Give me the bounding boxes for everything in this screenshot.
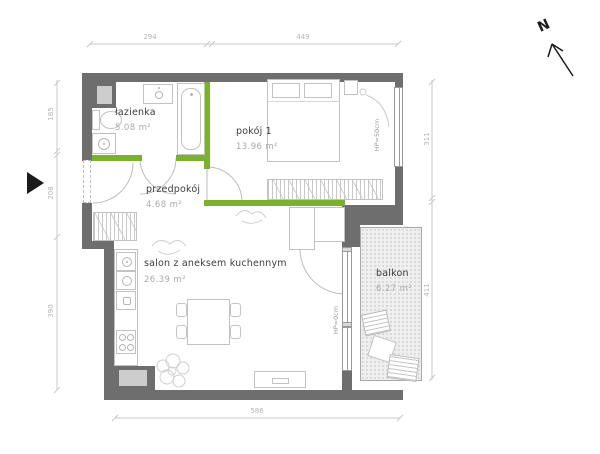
dim-top-2: 449 bbox=[283, 33, 323, 41]
dim-top-1: 294 bbox=[130, 33, 170, 41]
bathtub-drain-dot bbox=[190, 93, 193, 96]
dim-right-1: 311 bbox=[423, 119, 431, 159]
pillow-left bbox=[272, 83, 300, 98]
shaft-bathroom-inner bbox=[97, 86, 112, 104]
tv-cabinet bbox=[254, 371, 306, 388]
balcony-door bbox=[342, 247, 352, 327]
entrance-door bbox=[83, 160, 91, 203]
toilet-tank bbox=[92, 110, 100, 130]
room-label-lazienka: łazienka bbox=[115, 107, 156, 118]
floor-plan-canvas: N łazienka 5.08 m² pokój 1 13.96 m² prze… bbox=[0, 0, 600, 454]
room-label-pokoj1: pokój 1 bbox=[236, 126, 272, 137]
pillow-right bbox=[304, 83, 332, 98]
balcony-chair bbox=[386, 354, 419, 382]
bathtub bbox=[177, 83, 205, 155]
wall-left-step bbox=[82, 241, 114, 249]
bed-headboard-line bbox=[268, 101, 339, 102]
partition-bedroom-salon bbox=[204, 200, 345, 206]
window-frame-line bbox=[399, 88, 400, 166]
balcony-door-arc bbox=[300, 249, 345, 294]
room-area-przedpokoj: 4.68 m² bbox=[146, 200, 182, 210]
bird-sketch-hall bbox=[152, 240, 186, 254]
shaft-kitchen bbox=[114, 366, 155, 390]
dim-left-1: 185 bbox=[47, 94, 55, 134]
plant-sketch-salon bbox=[157, 354, 189, 387]
washbasin-drain-icon bbox=[155, 91, 163, 99]
wall-right-mid bbox=[395, 167, 403, 207]
north-arrow-icon bbox=[548, 44, 573, 76]
wall-right-lower bbox=[342, 371, 352, 390]
room-label-balkon: balkon bbox=[376, 268, 409, 279]
burner-icon bbox=[119, 334, 126, 341]
wardrobe-hall bbox=[93, 212, 137, 241]
sofa-chaise bbox=[289, 207, 315, 250]
oven-door-icon bbox=[123, 297, 131, 305]
burner-icon bbox=[127, 344, 134, 351]
room-area-salon: 26.39 m² bbox=[144, 275, 186, 285]
dim-bottom-1: 586 bbox=[237, 407, 277, 415]
oven bbox=[116, 291, 136, 310]
window-pokoj1 bbox=[394, 87, 403, 167]
bedroom-door-arc bbox=[207, 167, 242, 202]
appliance-ring-icon bbox=[122, 276, 132, 286]
room-area-lazienka: 5.08 m² bbox=[115, 123, 151, 133]
kitchen-sink bbox=[116, 252, 136, 271]
sofa-seat bbox=[314, 207, 345, 242]
sill-label-pokoj1: HP=50cm bbox=[373, 110, 381, 160]
balcony-door-hinge-block-top bbox=[342, 247, 352, 252]
kitchen-appliance bbox=[116, 271, 136, 290]
door-frame-line bbox=[347, 248, 348, 326]
washbasin-tap-dot bbox=[158, 87, 160, 89]
chair bbox=[176, 303, 187, 317]
entrance-door-arc bbox=[93, 163, 133, 203]
partition-bath-bottom-left bbox=[92, 155, 142, 161]
dining-table bbox=[187, 299, 230, 345]
wall-balcony-top bbox=[342, 205, 403, 225]
nightstand bbox=[344, 80, 358, 95]
chair bbox=[230, 325, 241, 339]
washbasin bbox=[143, 84, 173, 104]
dim-right-2: 411 bbox=[423, 270, 431, 310]
burner-icon bbox=[119, 344, 126, 351]
tv-cabinet-handle bbox=[272, 378, 289, 384]
burner-icon bbox=[127, 334, 134, 341]
stove bbox=[116, 330, 136, 354]
chair bbox=[230, 303, 241, 317]
washing-machine bbox=[92, 133, 116, 154]
shaft-kitchen-inner bbox=[119, 370, 147, 386]
room-label-przedpokoj: przedpokój bbox=[146, 184, 200, 195]
washing-machine-dot bbox=[103, 143, 105, 145]
window-salon bbox=[342, 327, 352, 371]
sink-dot bbox=[126, 261, 128, 263]
room-area-pokoj1: 13.96 m² bbox=[236, 142, 278, 152]
bathtub-inner bbox=[181, 88, 201, 150]
entrance-marker-icon bbox=[27, 172, 44, 194]
room-area-balkon: 6.27 m² bbox=[376, 284, 412, 294]
partition-bedroom-door-jamb bbox=[204, 161, 210, 169]
window-frame-line bbox=[347, 328, 348, 370]
room-label-salon: salon z aneksem kuchennym bbox=[144, 258, 287, 269]
wall-left-upper bbox=[82, 73, 92, 161]
bird-sketch-salon bbox=[236, 210, 266, 223]
dim-left-3: 390 bbox=[47, 291, 55, 331]
wardrobe-pokoj1 bbox=[267, 179, 383, 200]
shaft-bathroom bbox=[92, 82, 116, 108]
wall-left-lower bbox=[104, 249, 114, 390]
dim-left-2: 208 bbox=[47, 173, 55, 213]
sill-label-balkon: HP=0cm bbox=[332, 295, 340, 345]
wall-bottom bbox=[104, 390, 403, 400]
chair bbox=[176, 325, 187, 339]
